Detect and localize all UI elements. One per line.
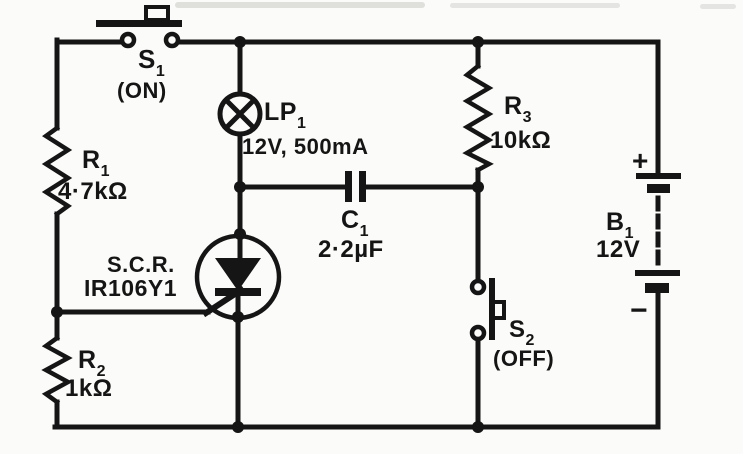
label-scr-part: IR106Y1 [84, 275, 177, 301]
scan-smudge [450, 3, 620, 8]
label-b1-value: 12V [596, 236, 640, 263]
battery-plate-short-top [647, 184, 670, 193]
capacitor-c1-symbol [345, 171, 366, 202]
s1-terminal-left [122, 34, 134, 46]
label-lp1: LP1 [264, 98, 306, 132]
lamp-cross [226, 100, 254, 128]
label-s2-state: (OFF) [493, 346, 554, 371]
label-battery-minus: − [630, 294, 648, 327]
capacitor-plate-left [345, 171, 352, 202]
label-c1: C1 [341, 206, 369, 240]
labels: S1 (ON) R1 4·7kΩ LP1 12V, 500mA C1 2·2µF… [58, 44, 649, 402]
s2-plunger [495, 302, 504, 318]
battery-plate-long-bottom [635, 270, 680, 276]
label-c1-value: 2·2µF [318, 236, 384, 263]
label-r1-value: 4·7kΩ [58, 178, 128, 205]
scr-cathode-bar [215, 288, 261, 296]
scan-smudge [700, 4, 736, 9]
label-r3-value: 10kΩ [490, 127, 551, 154]
label-r1: R1 [82, 146, 110, 180]
lamp-lp1-symbol [220, 94, 260, 134]
s2-bar [489, 278, 495, 340]
s1-terminal-right [166, 34, 178, 46]
battery-b1-symbol [635, 173, 681, 293]
label-s1: S1 [138, 44, 165, 80]
scr-triangle [215, 258, 261, 291]
circuit-schematic: S1 (ON) R1 4·7kΩ LP1 12V, 500mA C1 2·2µF… [0, 0, 743, 449]
scan-smudge [175, 2, 425, 8]
s2-terminal-top [472, 281, 484, 293]
label-scr-type: S.C.R. [107, 252, 175, 277]
label-r3: R3 [504, 92, 532, 126]
label-s2: S2 [509, 316, 535, 349]
capacitor-plate-right [359, 171, 366, 202]
schematic-page: S1 (ON) R1 4·7kΩ LP1 12V, 500mA C1 2·2µF… [0, 0, 743, 449]
label-s1-state: (ON) [117, 78, 167, 103]
label-battery-plus: + [632, 145, 649, 176]
s2-terminal-bottom [472, 327, 484, 339]
label-r2-value: 1kΩ [65, 375, 112, 402]
battery-plate-short-bottom [645, 283, 669, 293]
switch-s2-symbol [472, 278, 504, 340]
junction-dots [51, 36, 484, 433]
resistor-r3-symbol [467, 66, 489, 170]
s1-plunger [146, 7, 168, 20]
label-lp1-value: 12V, 500mA [242, 134, 369, 159]
